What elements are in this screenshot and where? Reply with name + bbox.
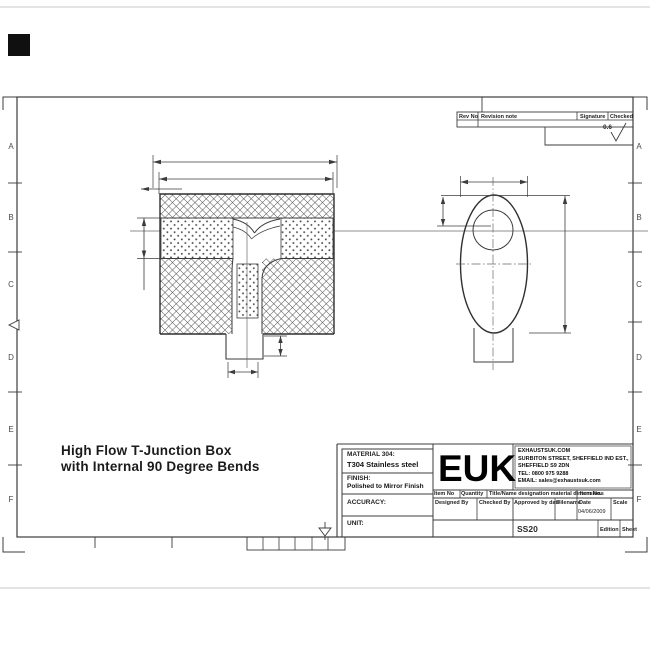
print-mark-square [8,34,30,56]
rev-no-header: Rev No [459,114,478,120]
finish-value: Polished to Mirror Finish [347,483,424,490]
company-phone: TEL: 0800 975 9288 [518,471,629,479]
dimensions-side-view [437,176,571,333]
material-value: T304 Stainless steel [347,460,418,469]
company-email: EMAIL: sales@exhaustsuk.com [518,478,629,486]
company-street: SURBITON STREET, SHEFFIELD IND EST., [518,456,629,464]
checked-header: Checked [610,114,633,120]
tube-wall-vertical [237,264,258,318]
material-label: MATERIAL 304: [347,451,395,458]
unit-label: UNIT: [347,520,364,527]
quantity-header: Quantity [461,491,483,497]
finish-label: FINISH: [347,475,370,482]
drawing-title: High Flow T-Junction Box with Internal 9… [61,443,260,475]
stub-pipe [226,334,263,359]
zone-letter-right-a: A [634,142,644,151]
drawing-sheet: High Flow T-Junction Box with Internal 9… [0,0,650,650]
drawing-number: SS20 [517,524,538,534]
accuracy-label: ACCURACY: [347,499,386,506]
edition-label: Edition [600,527,619,533]
zone-letter-left-d: D [6,353,16,362]
zone-letter-right-e: E [634,425,644,434]
company-logo: EUK [438,448,516,490]
revision-table [457,97,633,145]
drawing-title-line1: High Flow T-Junction Box [61,443,260,459]
zone-letter-right-d: D [634,353,644,362]
drawing-title-line2: with Internal 90 Degree Bends [61,459,260,475]
approved-by-header: Approved by date [514,500,560,506]
item-no-header: Item No [434,491,454,497]
zone-letter-left-a: A [6,142,16,151]
checked-by-header: Checked By [479,500,511,506]
sheet-label: Sheet [622,527,637,533]
date-value: 04/06/2009 [578,509,606,515]
zone-letter-right-c: C [634,280,644,289]
drawing-canvas [0,0,650,650]
scale-header: Scale [613,500,627,506]
tube-wall-right [281,218,333,259]
zone-letter-right-b: B [634,213,644,222]
company-info: EXHAUSTSUK.COM SURBITON STREET, SHEFFIEL… [518,448,629,486]
zone-letter-left-e: E [6,425,16,434]
designed-by-header: Designed By [435,500,468,506]
company-postcode: SHEFFIELD S9 2DN [518,463,629,471]
zone-letter-left-b: B [6,213,16,222]
signature-header: Signature [580,114,605,120]
t-junction-section-view [130,155,648,378]
filename-header: Filename [557,500,581,506]
surface-finish-symbol [611,123,626,141]
left-centering-mark [9,320,19,330]
tube-wall-left [161,218,233,259]
revision-note-header: Revision note [481,114,517,120]
date-header: Date [579,500,591,506]
zone-letter-left-f: F [6,495,16,504]
zone-letter-right-f: F [634,495,644,504]
zone-letter-left-c: C [6,280,16,289]
bottom-scale-bar [247,537,345,550]
company-website: EXHAUSTSUK.COM [518,448,629,456]
item-no2-header: Item No. [580,491,602,497]
surface-finish-value: 0.6 [603,124,612,131]
side-profile-view [437,176,571,370]
